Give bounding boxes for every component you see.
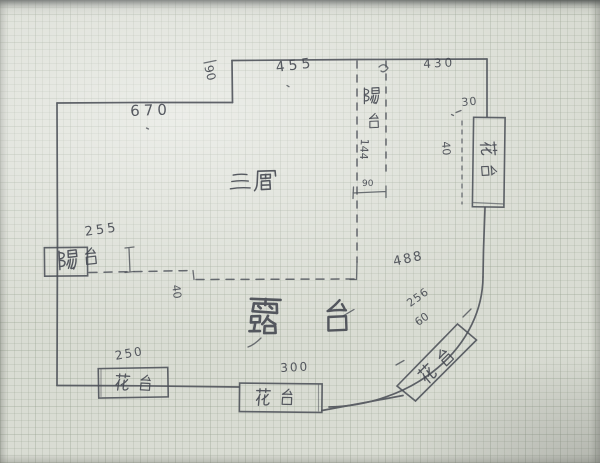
planter-right-label: 花台 — [476, 138, 500, 184]
dimension-right-step: 30 — [461, 96, 478, 108]
floor-label: 三層 — [228, 166, 282, 194]
balcony-left-label: 陽台 — [55, 248, 99, 272]
planter-bottom-left-label: 花台 — [112, 370, 158, 394]
dimension-top-wall-right: 430 — [423, 56, 455, 70]
floor-plan-sketch-photo: 670 90 455 430 30 40 144 90 255 40 488 2… — [0, 0, 600, 463]
dimension-top-left-wall: 670 — [130, 103, 171, 119]
dimension-terrace-edge-step: 40 — [170, 284, 183, 299]
terrace-label: 露台 — [245, 295, 357, 341]
balcony-top-label: 陽台 — [360, 85, 384, 133]
dimension-top-balcony-length: 144 — [358, 138, 370, 160]
planter-bottom-middle-label: 花台 — [252, 385, 300, 409]
dimension-top-left-step: 90 — [202, 64, 217, 82]
dimension-right-planter-depth: 40 — [440, 141, 452, 156]
dimension-top-balcony-width: 90 — [362, 180, 373, 189]
dimension-planter-bottom-middle-width: 300 — [280, 360, 309, 373]
